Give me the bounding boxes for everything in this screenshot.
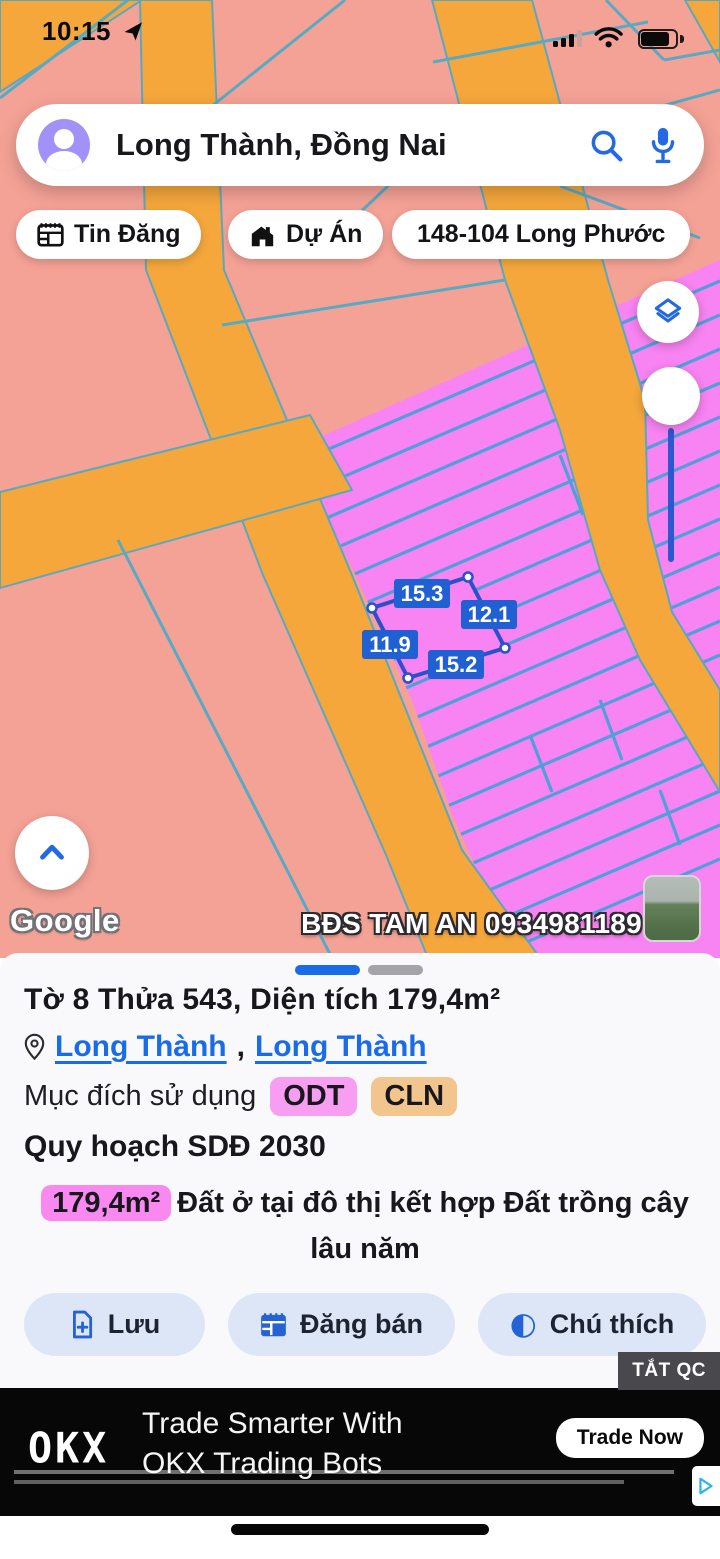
location-separator: , <box>237 1030 245 1064</box>
location-link-ward[interactable]: Long Thành <box>55 1030 227 1064</box>
listing-table-icon <box>260 1312 287 1338</box>
sheet-actions: Lưu Đăng bán ◐ Chú thích <box>0 1293 720 1356</box>
ad-cta-button[interactable]: Trade Now <box>556 1418 704 1458</box>
microphone-icon[interactable] <box>648 126 678 164</box>
collapse-sheet-button[interactable] <box>15 816 89 890</box>
clock: 10:15 <box>42 16 111 47</box>
chip-projects-label: Dự Án <box>286 220 362 249</box>
chip-parcel-address[interactable]: 148-104 Long Phước <box>392 210 690 259</box>
land-use-label: Mục đích sử dụng <box>24 1080 256 1113</box>
zoom-slider-track[interactable] <box>668 428 674 562</box>
news-icon <box>37 222 64 247</box>
location-row: Long Thành, Long Thành <box>24 1030 706 1064</box>
adchoices-icon[interactable] <box>692 1466 720 1506</box>
post-listing-button[interactable]: Đăng bán <box>228 1293 455 1356</box>
ad-disclaimer-line2 <box>14 1480 624 1484</box>
land-description-text: Đất ở tại đô thị kết hợp Đất trồng cây l… <box>177 1187 689 1265</box>
planning-label: Quy hoạch SDĐ 2030 <box>24 1130 706 1164</box>
location-pin-icon <box>24 1033 45 1061</box>
chip-parcel-label: 148-104 Long Phước <box>417 220 665 249</box>
battery-icon <box>638 29 684 49</box>
legend-button-label: Chú thích <box>550 1309 674 1340</box>
sheet-handle-inactive[interactable] <box>368 965 423 975</box>
parcel-info-sheet: Tờ 8 Thửa 543, Diện tích 179,4m² Long Th… <box>0 953 720 1388</box>
land-use-badge-odt: ODT <box>270 1077 357 1116</box>
ad-headline-line2: OKX Trading Bots <box>142 1444 403 1484</box>
home-bar-zone <box>0 1516 720 1559</box>
ad-disclaimer-line1 <box>14 1470 674 1474</box>
building-icon <box>249 222 276 248</box>
dim-label-bottom: 15.2 <box>435 652 478 677</box>
land-description: 179,4m²Đất ở tại đô thị kết hợp Đất trồn… <box>24 1180 706 1273</box>
post-listing-label: Đăng bán <box>300 1309 423 1340</box>
search-input[interactable] <box>90 127 580 163</box>
location-active-icon <box>122 20 144 42</box>
sheet-handle-active[interactable] <box>295 965 360 975</box>
dim-label-right: 12.1 <box>468 602 511 627</box>
chip-posts[interactable]: Tin Đăng <box>16 210 201 259</box>
search-bar <box>16 104 704 186</box>
save-file-icon <box>69 1310 95 1339</box>
layers-icon <box>650 294 686 330</box>
app-screen: 15.3 12.1 11.9 15.2 10:15 <box>0 0 720 1559</box>
status-bar: 10:15 <box>0 0 720 60</box>
dim-label-top: 15.3 <box>401 581 444 606</box>
wifi-icon <box>594 27 624 49</box>
map-layers-button[interactable] <box>637 281 699 343</box>
search-icon[interactable] <box>588 127 624 163</box>
map-watermark: BĐS TAM AN 0934981189 <box>0 908 642 940</box>
chip-posts-label: Tin Đăng <box>74 220 180 249</box>
land-use-badge-cln: CLN <box>371 1077 457 1116</box>
save-button[interactable]: Lưu <box>24 1293 205 1356</box>
chevron-up-icon <box>32 833 72 873</box>
signal-strength-icon <box>553 30 582 47</box>
home-indicator[interactable] <box>231 1524 489 1535</box>
ad-headline-line1: Trade Smarter With <box>142 1404 403 1444</box>
save-button-label: Lưu <box>108 1309 161 1340</box>
land-use-row: Mục đích sử dụng ODT CLN <box>24 1077 706 1116</box>
dim-label-left: 11.9 <box>369 632 411 657</box>
ad-banner[interactable]: OKX Trade Smarter With OKX Trading Bots … <box>0 1388 720 1516</box>
legend-button[interactable]: ◐ Chú thích <box>478 1293 706 1356</box>
chip-projects[interactable]: Dự Án <box>228 210 383 259</box>
street-photo-thumbnail[interactable] <box>643 875 701 942</box>
location-link-district[interactable]: Long Thành <box>255 1030 427 1064</box>
okx-logo: OKX <box>28 1425 109 1473</box>
area-badge: 179,4m² <box>41 1185 171 1221</box>
dismiss-ad-button[interactable]: TẮT QC <box>618 1352 720 1390</box>
account-avatar[interactable] <box>38 119 90 171</box>
legend-contrast-icon: ◐ <box>510 1309 537 1340</box>
zoom-slider-knob[interactable] <box>642 367 700 425</box>
parcel-title: Tờ 8 Thửa 543, Diện tích 179,4m² <box>24 983 706 1017</box>
